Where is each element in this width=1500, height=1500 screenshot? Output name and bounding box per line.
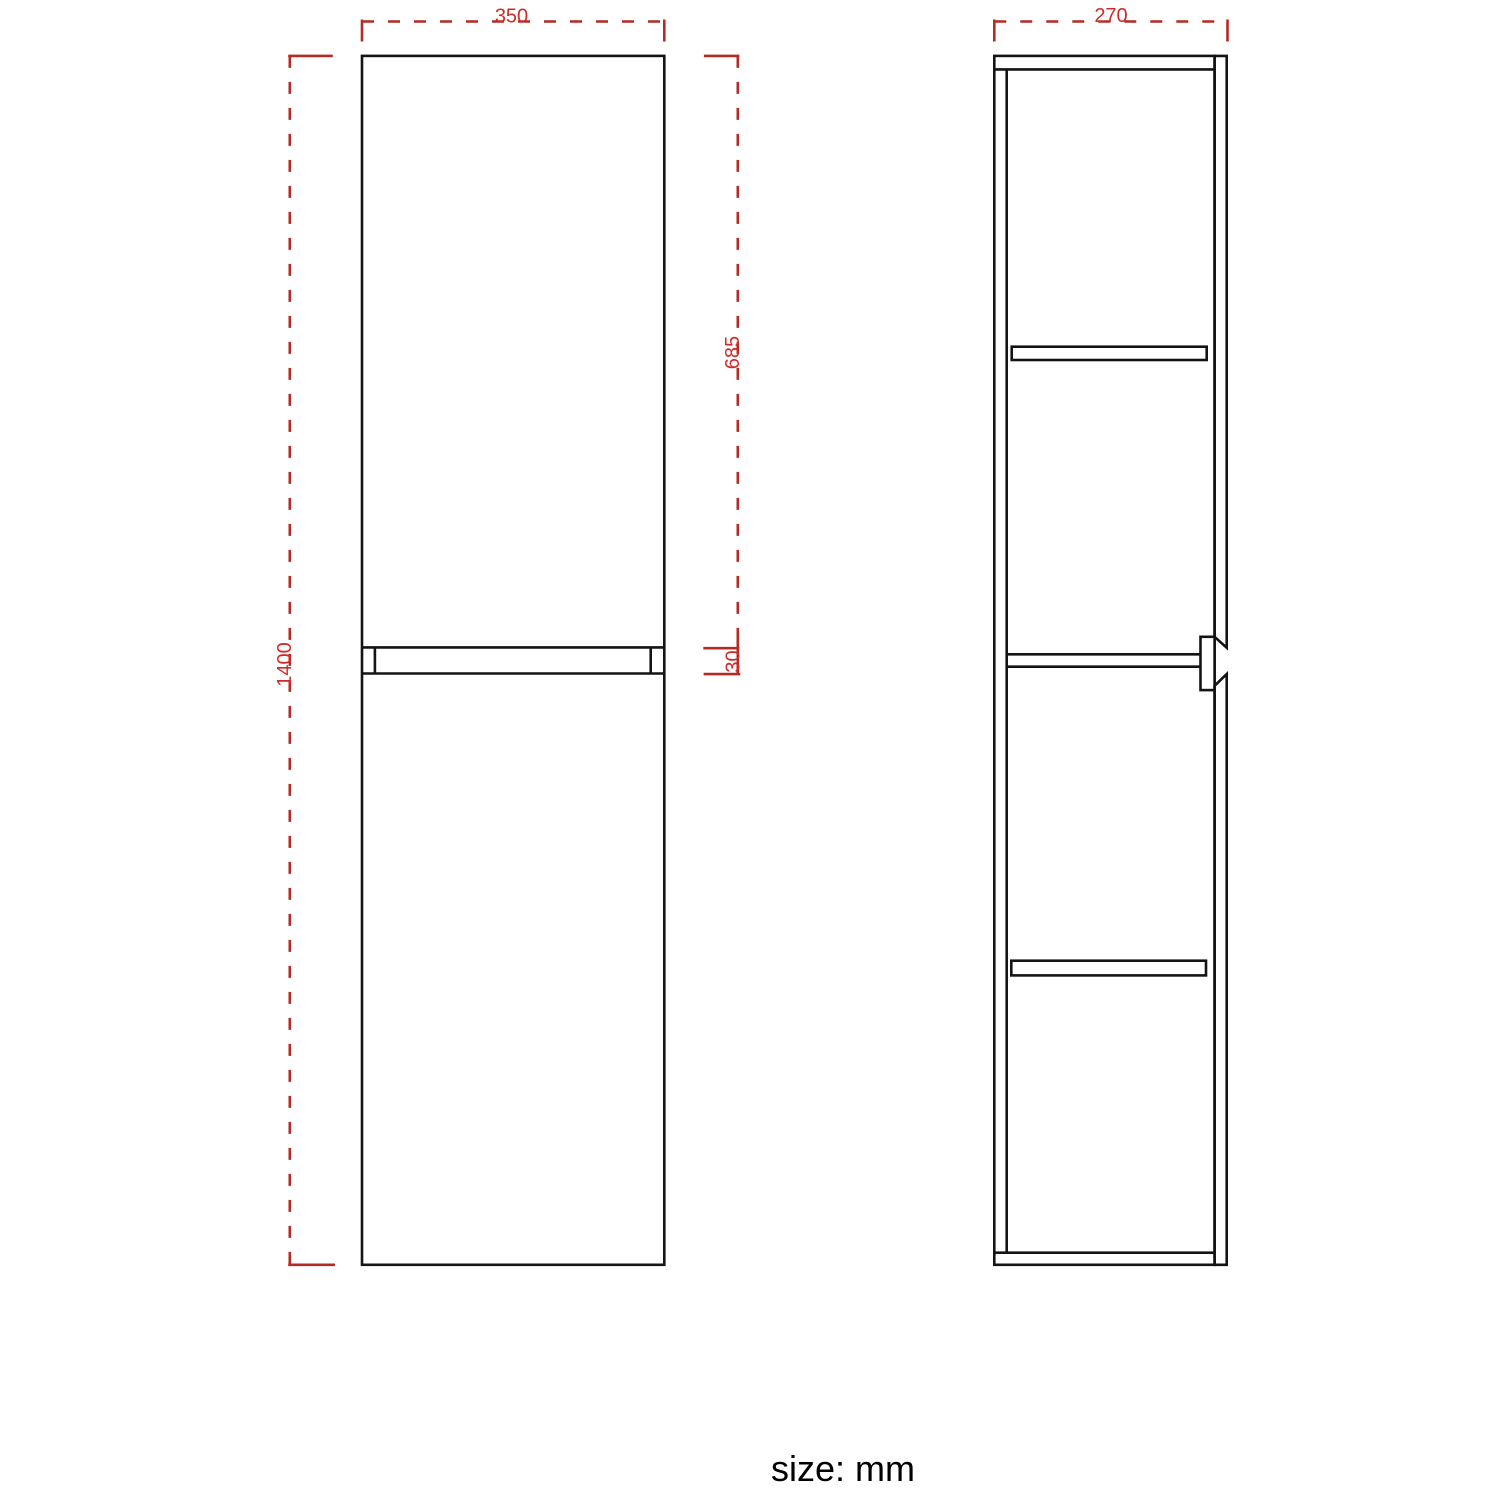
svg-text:size: mm: size: mm xyxy=(771,1448,915,1489)
svg-text:1400: 1400 xyxy=(274,642,296,687)
svg-text:270: 270 xyxy=(1094,5,1127,27)
svg-text:30: 30 xyxy=(723,650,745,672)
svg-text:685: 685 xyxy=(722,336,744,369)
svg-text:350: 350 xyxy=(495,6,528,28)
